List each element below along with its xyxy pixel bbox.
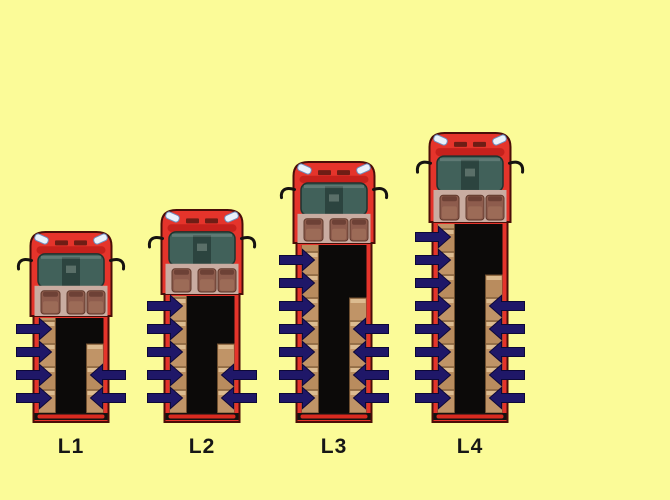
truck-cab [281,162,386,243]
truck-length-label-l2: L2 [189,435,216,459]
truck-cab [149,210,254,294]
truck-length-label-l4: L4 [457,435,484,459]
truck-l3 [280,162,389,422]
truck-cab [18,232,123,316]
grille-icon [55,240,68,245]
truck-diagram-canvas [0,0,670,500]
truck-l1 [17,232,126,422]
grille-icon [205,218,218,223]
truck-loading-diagram: L1L2L3L4 [0,0,670,500]
truck-cab [417,133,522,222]
grille-icon [473,142,486,147]
truck-length-label-l1: L1 [58,435,85,459]
grille-icon [318,170,331,175]
truck-l4 [416,133,525,422]
grille-icon [337,170,350,175]
truck-l2 [148,210,257,422]
grille-icon [74,240,87,245]
grille-icon [454,142,467,147]
truck-length-label-l3: L3 [321,435,348,459]
grille-icon [186,218,199,223]
